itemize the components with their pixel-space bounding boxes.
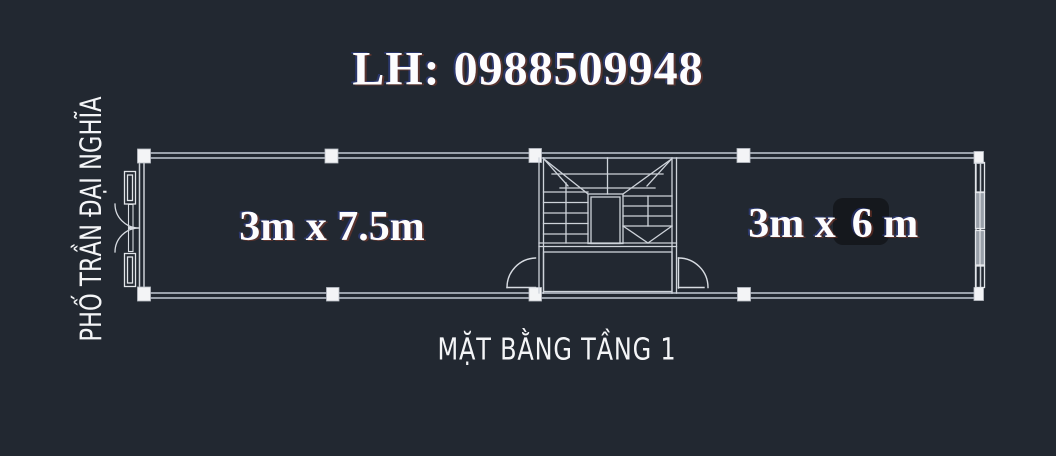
bottom-wall xyxy=(144,293,978,298)
right-room-dimensions-label-suffix: 6 m xyxy=(852,200,919,248)
left-wall xyxy=(140,163,145,287)
stair-treads-left xyxy=(544,183,589,243)
contact-phone-title: LH: 0988509948 xyxy=(352,42,703,97)
stair-landing xyxy=(544,158,672,194)
plan-caption: MẶT BẰNG TẦNG 1 xyxy=(437,333,676,368)
column xyxy=(974,152,984,164)
staircase xyxy=(539,158,677,293)
left-room-dimensions-label: 3m x 7.5m xyxy=(239,203,424,251)
column xyxy=(974,288,984,301)
entrance-double-door xyxy=(115,204,139,252)
column xyxy=(737,149,750,163)
right-room-dimensions-label-prefix: 3m x xyxy=(748,200,836,248)
top-wall xyxy=(144,153,978,158)
hall xyxy=(544,252,673,292)
column xyxy=(327,288,340,302)
floor-plan-canvas: LH: 0988509948 PHỐ TRẦN ĐẠI NGHĨA xyxy=(0,0,1056,456)
stair-direction-arrow xyxy=(623,226,672,243)
stair-core xyxy=(588,194,623,244)
window-left-bottom xyxy=(125,254,136,287)
column xyxy=(738,288,751,302)
column xyxy=(138,149,151,163)
street-name-label: PHỐ TRẦN ĐẠI NGHĨA xyxy=(74,96,108,341)
column xyxy=(325,149,338,163)
window-left-top xyxy=(125,172,136,205)
stair-treads-right xyxy=(623,196,672,226)
hall-door-left xyxy=(507,258,536,288)
hall-door-right xyxy=(679,258,709,288)
column xyxy=(138,287,151,301)
